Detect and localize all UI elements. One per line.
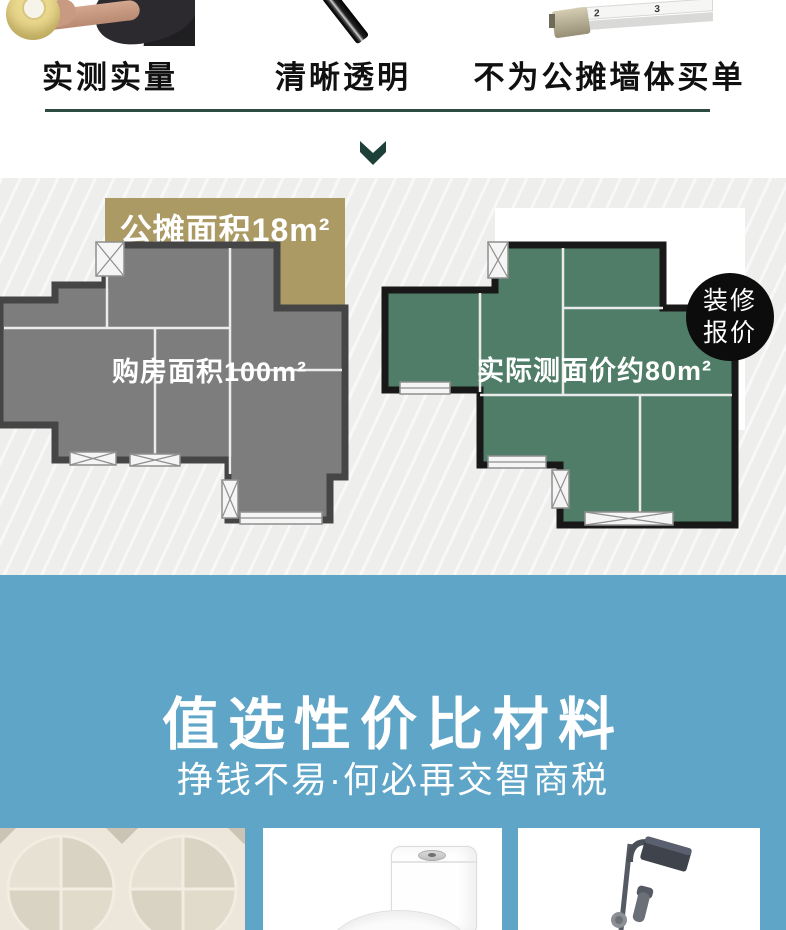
floorplan-comparison-section: 公摊面积18m² <box>0 178 786 575</box>
feature-label-transparent: 清晰透明 <box>253 52 433 97</box>
shower-drawing <box>518 828 760 930</box>
materials-section: 值选性价比材料 挣钱不易·何必再交智商税 <box>0 575 786 930</box>
flush-button-dot <box>428 853 436 857</box>
laser-pen-image <box>322 0 370 44</box>
feature-label-no-shared-area: 不为公摊墙体买单 <box>452 52 767 97</box>
tape-hook <box>549 14 555 28</box>
chevron-down-icon <box>359 141 387 166</box>
materials-subtitle: 挣钱不易·何必再交智商税 <box>0 751 786 803</box>
wallpaper-pattern <box>0 828 245 930</box>
promo-page: 2 3 4 实测实量 清晰透明 不为公摊墙体买单 公摊面积18m² <box>0 0 786 930</box>
steel-tape-measure-image: 2 3 4 <box>545 0 715 40</box>
features-section: 2 3 4 实测实量 清晰透明 不为公摊墙体买单 <box>0 0 786 178</box>
toilet-product-image <box>263 828 502 930</box>
tape-case <box>551 7 590 39</box>
badge-line2: 报价 <box>703 317 757 349</box>
shower-product-image <box>518 828 760 930</box>
badge-line1: 装修 <box>703 285 757 317</box>
hand-holding-tape-measure-image <box>0 0 195 46</box>
tank-lid-line <box>392 861 476 863</box>
materials-title: 值选性价比材料 <box>0 679 786 761</box>
renovation-quote-badge: 装修 报价 <box>686 273 774 361</box>
wallpaper-product-image <box>0 828 245 930</box>
measured-area-label: 实际测面价约80m² <box>477 349 712 388</box>
feature-label-measure: 实测实量 <box>20 52 200 97</box>
purchased-area-label: 购房面积100m² <box>112 350 307 389</box>
flush-button <box>418 850 446 861</box>
green-divider-line <box>45 109 710 112</box>
